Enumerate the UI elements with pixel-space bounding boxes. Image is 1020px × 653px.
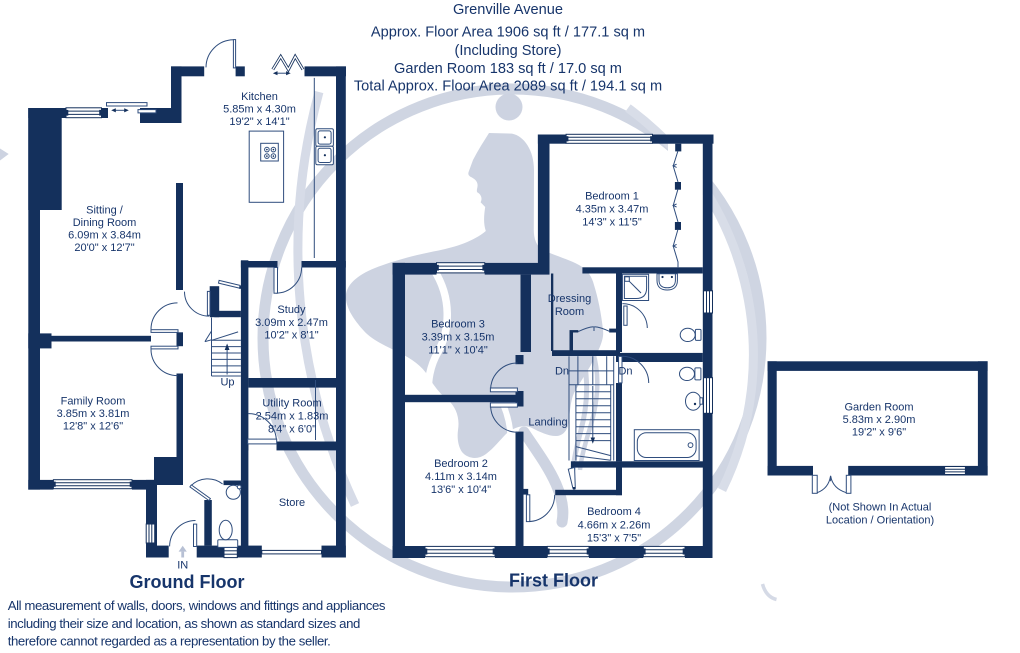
svg-text:Bedroom 2: Bedroom 2 [434, 458, 488, 470]
svg-text:5.85m x 4.30m: 5.85m x 4.30m [223, 104, 296, 116]
svg-text:Utility Room: Utility Room [262, 398, 321, 410]
svg-text:(Including Store): (Including Store) [454, 43, 561, 59]
svg-text:4.35m x 3.47m: 4.35m x 3.47m [576, 204, 649, 216]
svg-text:Ground Floor: Ground Floor [130, 572, 245, 592]
svg-text:including their size and locat: including their size and location, as sh… [8, 616, 360, 631]
svg-text:Room: Room [555, 306, 584, 318]
svg-text:Store: Store [279, 497, 305, 509]
svg-text:Dn: Dn [618, 366, 632, 378]
svg-text:12'8" x 12'6": 12'8" x 12'6" [63, 421, 123, 433]
svg-text:19'2" x 14'1": 19'2" x 14'1" [229, 116, 289, 128]
svg-text:3.09m x 2.47m: 3.09m x 2.47m [255, 317, 328, 329]
svg-text:6.09m x 3.84m: 6.09m x 3.84m [68, 230, 141, 242]
svg-text:20'0" x 12'7": 20'0" x 12'7" [74, 242, 134, 254]
svg-text:5.83m x 2.90m: 5.83m x 2.90m [843, 414, 916, 426]
svg-text:14'3" x 11'5": 14'3" x 11'5" [582, 217, 642, 229]
svg-text:4.11m x 3.14m: 4.11m x 3.14m [425, 471, 497, 483]
svg-text:All measurement of walls, door: All measurement of walls, doors, windows… [8, 598, 386, 613]
svg-text:Dn: Dn [555, 366, 569, 378]
svg-text:Dining Room: Dining Room [73, 217, 137, 229]
svg-text:Dressing: Dressing [548, 293, 591, 305]
svg-text:Landing: Landing [528, 417, 567, 429]
svg-text:19'2" x 9'6": 19'2" x 9'6" [852, 427, 906, 439]
svg-text:Study: Study [277, 304, 306, 316]
svg-text:2.54m x 1.83m: 2.54m x 1.83m [256, 411, 329, 423]
svg-text:Bedroom 1: Bedroom 1 [585, 191, 639, 203]
svg-text:therefore cannot regarded as a: therefore cannot regarded as a represent… [8, 634, 331, 649]
svg-text:4.66m x 2.26m: 4.66m x 2.26m [578, 520, 651, 532]
svg-text:First Floor: First Floor [509, 571, 598, 591]
svg-text:Bedroom 4: Bedroom 4 [587, 506, 641, 518]
svg-text:Total Approx. Floor Area 2089: Total Approx. Floor Area 2089 sq ft / 19… [354, 79, 662, 95]
svg-text:15'3" x 7'5": 15'3" x 7'5" [587, 533, 641, 545]
svg-text:Garden Room: Garden Room [844, 402, 913, 414]
svg-text:3.39m x 3.15m: 3.39m x 3.15m [422, 332, 495, 344]
svg-text:Bedroom 3: Bedroom 3 [431, 319, 485, 331]
svg-text:Family Room: Family Room [61, 396, 126, 408]
svg-text:11'1" x 10'4": 11'1" x 10'4" [428, 345, 488, 357]
svg-text:Kitchen: Kitchen [241, 91, 278, 103]
svg-text:(Not Shown In Actual: (Not Shown In Actual [829, 502, 932, 514]
svg-text:Approx. Floor Area 1906 sq ft: Approx. Floor Area 1906 sq ft / 177.1 sq… [371, 25, 645, 41]
svg-text:IN: IN [177, 560, 188, 572]
svg-text:3.85m x 3.81m: 3.85m x 3.81m [57, 408, 130, 420]
svg-text:Sitting /: Sitting / [86, 205, 124, 217]
svg-text:Up: Up [220, 377, 234, 389]
svg-text:13'6" x 10'4": 13'6" x 10'4" [431, 484, 491, 496]
svg-text:Grenville Avenue: Grenville Avenue [453, 2, 563, 18]
svg-text:Garden Room 183 sq ft / 17.0 s: Garden Room 183 sq ft / 17.0 sq m [394, 61, 622, 77]
svg-text:Location / Orientation): Location / Orientation) [826, 515, 934, 527]
svg-text:8'4" x 6'0": 8'4" x 6'0" [268, 424, 316, 436]
svg-text:10'2" x 8'1": 10'2" x 8'1" [264, 330, 318, 342]
